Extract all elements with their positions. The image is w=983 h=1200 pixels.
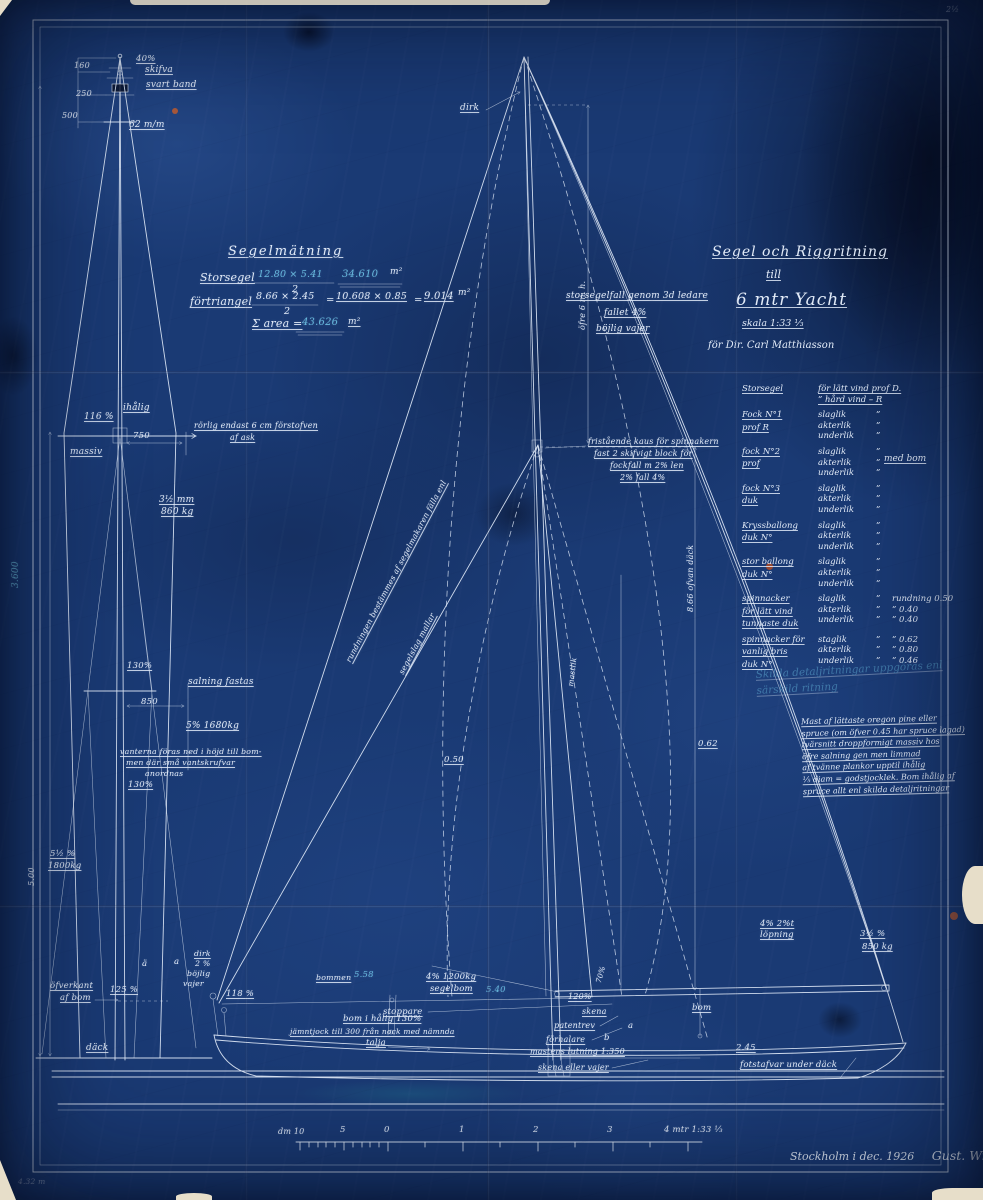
- drawing-label: bom i hålig 130%: [343, 1015, 421, 1024]
- drawing-label: 2½: [946, 6, 959, 14]
- drawing-label: 5.00: [28, 867, 36, 886]
- drawing-label: dirk: [194, 950, 211, 958]
- drawing-label: salning fastas: [188, 678, 254, 687]
- table-text: underlik: [818, 615, 876, 626]
- drawing-label: 3½ mm: [159, 496, 194, 505]
- drawing-label: 4% 1200kg: [426, 973, 476, 982]
- drawing-label: patentrev: [554, 1022, 595, 1030]
- blueprint-page: SegelmätningStorsegel12.80 × 5.41234.610…: [0, 0, 983, 1200]
- table-text: ”: [876, 421, 892, 432]
- drawing-label: 2% fall 4%: [620, 474, 665, 482]
- drawing-label: 8.66 ofvan däck: [687, 545, 695, 612]
- drawing-label: 250: [76, 90, 92, 98]
- drawing-label: 118 %: [226, 990, 254, 999]
- drawing-label: 850 kg: [862, 943, 893, 952]
- drawing-label: fast 2 skifvigt block för: [594, 450, 693, 458]
- table-text: staglik: [818, 635, 876, 646]
- table-text: ”: [876, 484, 892, 495]
- drawing-label: 116 %: [84, 413, 114, 422]
- table-text: akterlik: [818, 605, 876, 616]
- drawing-label: ä: [142, 960, 147, 969]
- title-connector: till: [766, 268, 781, 281]
- drawing-label: 0: [384, 1126, 390, 1135]
- table-text: tunnaste duk: [742, 619, 818, 630]
- table-text: ”: [876, 568, 892, 579]
- drawing-label: 0.62: [698, 740, 718, 749]
- drawing-label: 9.014: [424, 292, 454, 303]
- drawing-label: 43.626: [302, 318, 338, 329]
- drawing-label: 1: [459, 1126, 465, 1135]
- table-text: prof R: [742, 423, 818, 434]
- table-text: ” 0.80: [892, 645, 918, 656]
- table-text: rundning 0.50: [892, 594, 953, 605]
- table-text: vanlig bris: [742, 647, 818, 658]
- drawing-label: vanterna föras ned i höjd till bom-: [120, 748, 262, 756]
- drawing-label: fotstafvar under däck: [740, 1061, 837, 1070]
- table-text: akterlik: [818, 645, 876, 656]
- table-text: ”: [876, 521, 892, 532]
- drawing-label: 860 kg: [161, 508, 193, 517]
- drawing-label: 3.600: [12, 561, 21, 588]
- table-text: ”: [876, 635, 892, 646]
- table-text: ”: [876, 431, 892, 442]
- table-text: underlik: [818, 579, 876, 590]
- drawing-label: 750: [133, 432, 150, 441]
- drawing-label: förhalare: [546, 1036, 585, 1044]
- mast-notes: Mast af lättaste oregon pine ellerspruce…: [801, 712, 973, 798]
- drawing-label: m²: [390, 268, 403, 277]
- yacht-class: 6 mtr Yacht: [736, 290, 847, 310]
- drawing-label: 2.45: [736, 1044, 756, 1053]
- drawing-label: 2 %: [195, 960, 210, 968]
- drawing-label: 5% 1680kg: [186, 722, 239, 731]
- table-text: ”: [876, 579, 892, 590]
- table-text: ” 0.40: [892, 615, 918, 626]
- table-text: slaglik: [818, 447, 876, 458]
- table-text: duk N°: [742, 533, 818, 544]
- drawing-label: 4% 2%t: [760, 920, 794, 929]
- drawing-label: 130%: [128, 781, 153, 790]
- drawing-label: rörlig endast 6 cm förstofven: [194, 422, 318, 430]
- table-text: ”: [876, 410, 892, 421]
- table-text: prof: [742, 459, 818, 470]
- table-text: spinnacker för: [742, 635, 818, 646]
- drawing-label: fockfall m 2% len: [610, 462, 684, 470]
- rig-table: Storsegelför lätt vind prof D.” hård vin…: [742, 384, 978, 675]
- table-text: underlik: [818, 542, 876, 553]
- drawing-label: 4 mtr 1:33 ⅓: [664, 1126, 723, 1135]
- table-text: ”: [876, 594, 892, 605]
- table-text: ”: [876, 542, 892, 553]
- drawing-label: 12.80 × 5.41: [258, 270, 323, 280]
- table-text: ” 0.40: [892, 605, 918, 616]
- signature-name: Gust. Willands.: [932, 1148, 983, 1163]
- drawing-label: 8.66 × 2.45: [256, 292, 315, 302]
- drawing-label: 2: [284, 307, 290, 317]
- signature-place-date: Stockholm i dec. 1926: [790, 1150, 914, 1163]
- table-text: slaglik: [818, 521, 876, 532]
- drawing-label: ihålig: [123, 404, 150, 413]
- table-text: för lätt vind prof D.: [818, 384, 901, 395]
- drawing-label: vajer: [183, 980, 204, 988]
- drawing-label: mastens lutning 1:350: [530, 1048, 625, 1056]
- table-text: för lätt vind: [742, 607, 818, 618]
- drawing-label: 34.610: [342, 270, 378, 281]
- blueprint-sheet: SegelmätningStorsegel12.80 × 5.41234.610…: [0, 0, 983, 1200]
- drawing-label: jämntjock till 300 från nock med nämnda: [290, 1028, 455, 1036]
- drawing-label: 120%: [568, 993, 592, 1001]
- drawing-label: =: [414, 296, 423, 307]
- table-text: spinnacker: [742, 594, 818, 605]
- table-text: ”: [876, 468, 892, 479]
- table-text: stor ballong: [742, 557, 818, 568]
- drawing-label: 5.40: [486, 986, 506, 995]
- drawing-label: 500: [62, 112, 78, 120]
- table-text: akterlik: [818, 494, 876, 505]
- table-text: duk N°: [742, 570, 818, 581]
- drawing-label: talja: [366, 1039, 386, 1048]
- drawing-label: 3: [607, 1126, 613, 1135]
- table-text: akterlik: [818, 531, 876, 542]
- drawing-label: förtriangel: [190, 296, 252, 308]
- drawing-label: a: [174, 958, 179, 967]
- drawing-label: 10.608 × 0.85: [336, 292, 407, 302]
- table-text: ”: [876, 494, 892, 505]
- client-line: för Dir. Carl Matthiasson: [708, 340, 834, 351]
- table-text: slaglik: [818, 484, 876, 495]
- table-text: ”: [876, 645, 892, 656]
- table-text: fock N°2: [742, 447, 818, 458]
- table-text: underlik: [818, 505, 876, 516]
- drawing-label: öfverkant: [50, 982, 93, 991]
- drawing-label: dirk: [460, 104, 479, 113]
- drawing-label: 850: [141, 698, 158, 707]
- drawing-label: skifva: [145, 66, 173, 75]
- drawing-label: segelbom: [430, 985, 473, 994]
- drawing-label: af bom: [60, 994, 91, 1003]
- table-text: slaglik: [818, 557, 876, 568]
- table-text: ”: [876, 615, 892, 626]
- table-text: akterlik: [818, 458, 876, 469]
- drawing-label: däck: [86, 1044, 108, 1053]
- drawing-label: bommen: [316, 974, 351, 982]
- drawing-label: böjlig: [187, 970, 210, 978]
- drawing-label: 40%: [136, 55, 156, 64]
- drawing-label: 3½ %: [860, 930, 885, 939]
- table-text: underlik: [818, 468, 876, 479]
- table-text: ” hård vind – R: [818, 395, 882, 406]
- drawing-label: 5.58: [354, 971, 374, 980]
- drawing-label: men där små vantskrufvar: [126, 759, 235, 767]
- drawing-label: fristående kaus för spinnakern: [588, 438, 719, 446]
- drawing-label: 0.50: [444, 756, 464, 765]
- scale-note: skala 1:33 ⅓: [742, 318, 804, 329]
- drawing-label: =: [326, 296, 335, 307]
- signature: Stockholm i dec. 1926 Gust. Willands.: [790, 1148, 983, 1163]
- table-text: akterlik: [818, 568, 876, 579]
- table-text: ”: [876, 557, 892, 568]
- table-text: slaglik: [818, 594, 876, 605]
- table-text: ”: [876, 531, 892, 542]
- drawing-label: 2: [533, 1126, 539, 1135]
- drawing-label: löpning: [760, 931, 794, 940]
- drawing-label: 62 m/m: [129, 121, 165, 130]
- table-text: ” 0.62: [892, 635, 918, 646]
- drawing-label: 130%: [127, 662, 152, 671]
- table-text: underlik: [818, 431, 876, 442]
- drawing-label: skena eller vajer: [538, 1064, 609, 1072]
- drawing-label: Storsegel: [200, 272, 255, 284]
- drawing-label: svart band: [146, 81, 197, 90]
- drawing-label: massiv: [70, 448, 102, 457]
- table-text: fock N°3: [742, 484, 818, 495]
- table-text: akterlik: [818, 421, 876, 432]
- drawing-label: 5½ %: [50, 850, 75, 859]
- drawing-label: m²: [348, 318, 361, 327]
- table-text: Kryssballong: [742, 521, 818, 532]
- drawing-title: Segel och Riggritning: [712, 244, 888, 260]
- drawing-label: anordnas: [145, 770, 183, 778]
- drawing-label: 4.32 m: [18, 1178, 45, 1186]
- drawing-label: 5: [340, 1126, 346, 1135]
- drawing-label: bom: [692, 1004, 711, 1013]
- drawing-label: Σ area =: [252, 318, 302, 330]
- drawing-label: böjlig vajer: [596, 325, 650, 334]
- drawing-label: b: [604, 1034, 610, 1043]
- table-text: ”: [876, 505, 892, 516]
- drawing-label: 1800kg: [48, 862, 81, 871]
- table-text: duk: [742, 496, 818, 507]
- drawing-label: m²: [458, 289, 471, 298]
- drawing-label: storsegelfall genom 3d ledare: [566, 292, 708, 301]
- drawing-label: öfre 6 m. h.: [579, 281, 587, 330]
- table-text: slaglik: [818, 410, 876, 421]
- drawing-label: a: [628, 1022, 633, 1031]
- table-text: Fock N°1: [742, 410, 818, 421]
- drawing-label: 160: [74, 62, 90, 70]
- drawing-label: 125 %: [110, 986, 138, 995]
- drawing-label: af ask: [230, 434, 255, 442]
- table-text: ”: [876, 605, 892, 616]
- drawing-label: fallet 4%: [604, 309, 646, 318]
- table-note: med bom: [884, 454, 926, 464]
- table-text: Storsegel: [742, 384, 818, 395]
- drawing-label: dm 10: [278, 1128, 304, 1136]
- drawing-label: Segelmätning: [228, 245, 343, 259]
- drawing-label: skena: [582, 1008, 607, 1016]
